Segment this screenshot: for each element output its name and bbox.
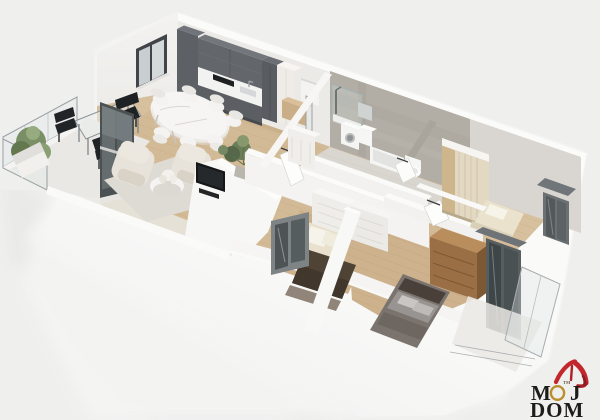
- svg-text:TM: TM: [563, 380, 571, 385]
- svg-text:DOM: DOM: [530, 398, 584, 420]
